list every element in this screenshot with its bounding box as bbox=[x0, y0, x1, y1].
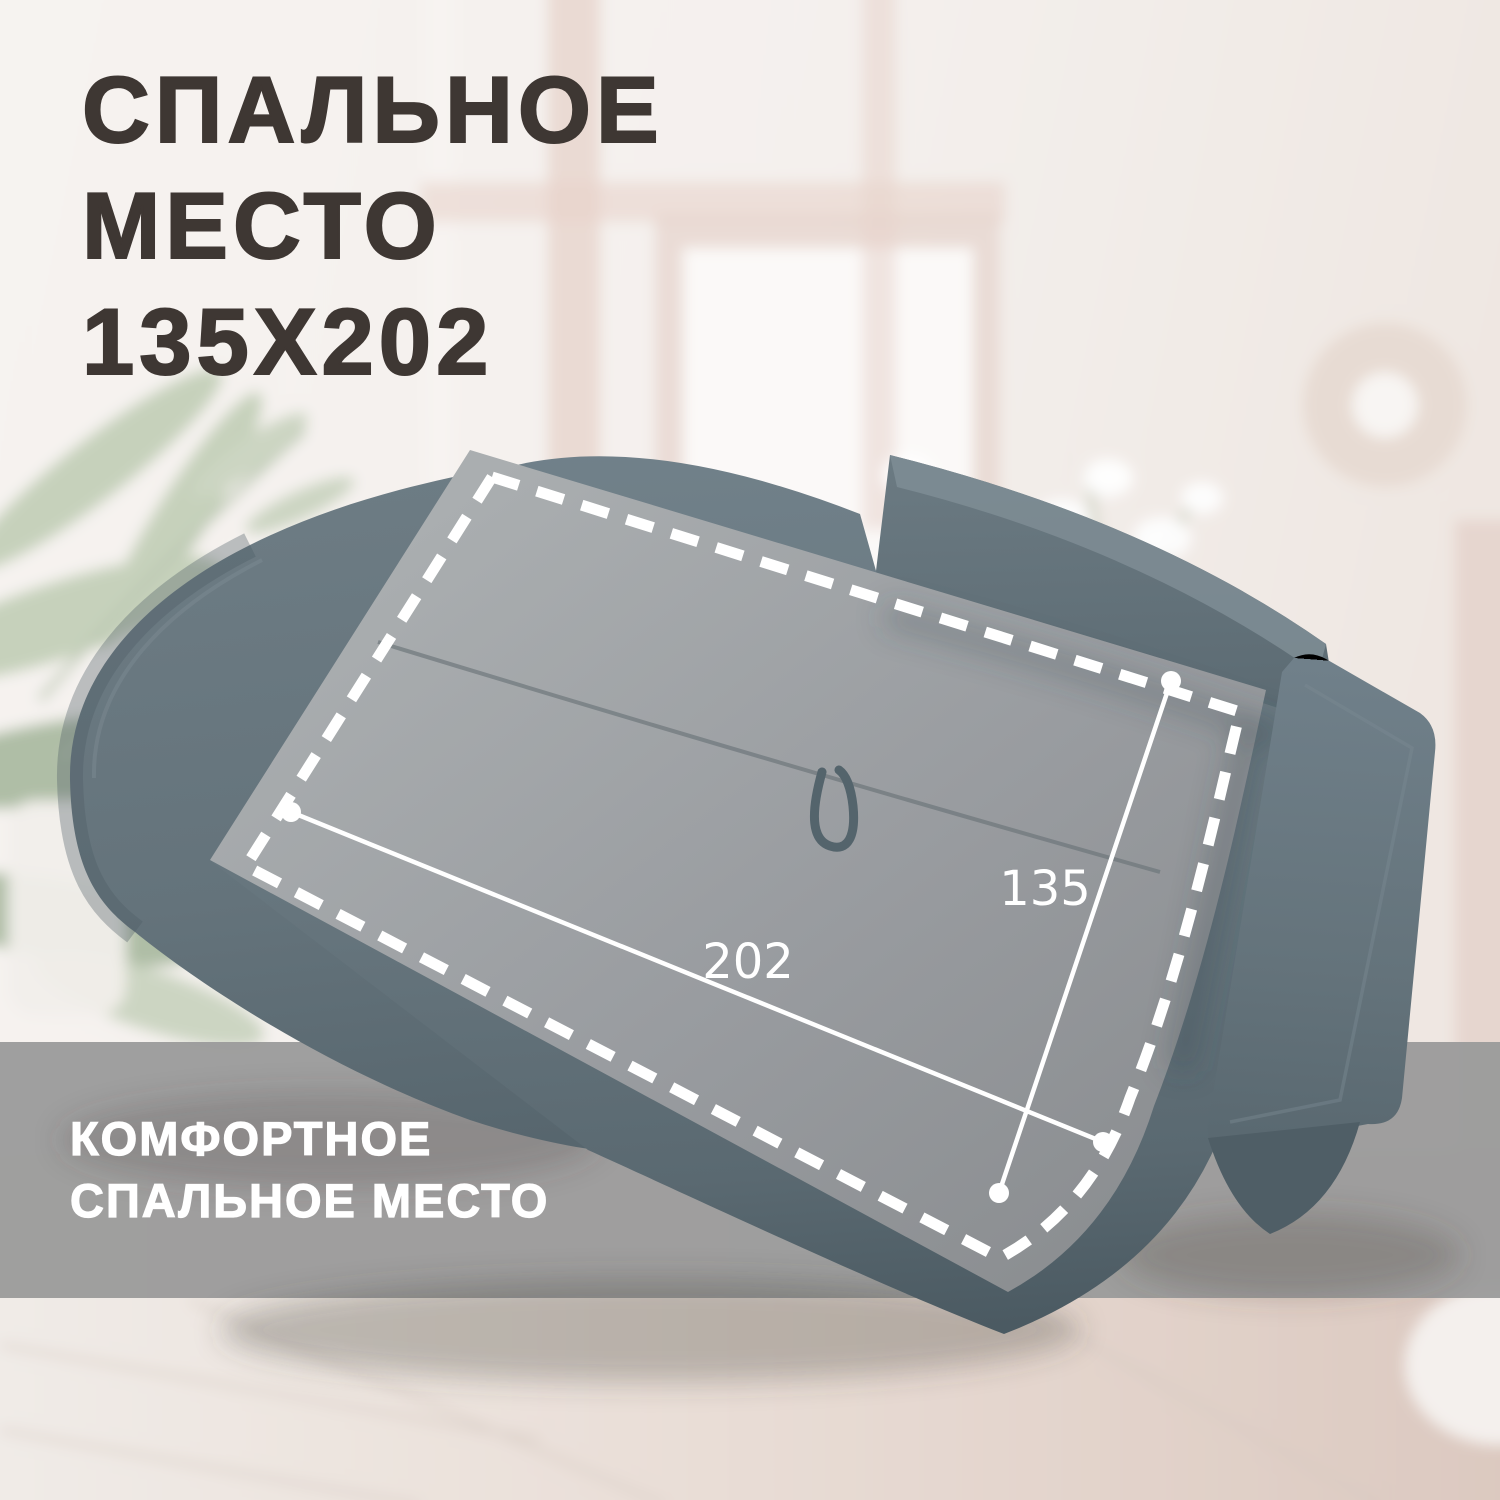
page-title: СПАЛЬНОЕ МЕСТО 135X202 bbox=[82, 52, 664, 400]
wall-ring-decor bbox=[1303, 323, 1467, 487]
door-frame-right bbox=[862, 0, 896, 530]
product-card: 202 135 СПАЛЬНОЕ МЕСТО 135X202 КОМФОРТНО… bbox=[0, 0, 1500, 1500]
banner-line-1: КОМФОРТНОЕ bbox=[70, 1108, 549, 1170]
banner-caption: КОМФОРТНОЕ СПАЛЬНОЕ МЕСТО bbox=[70, 1108, 549, 1232]
title-line-1: СПАЛЬНОЕ bbox=[82, 52, 664, 168]
title-line-3: 135X202 bbox=[82, 284, 664, 400]
width-dimension-label: 135 bbox=[999, 861, 1091, 917]
title-line-2: МЕСТО bbox=[82, 168, 664, 284]
banner-line-2: СПАЛЬНОЕ МЕСТО bbox=[70, 1170, 549, 1232]
length-dimension-label: 202 bbox=[702, 934, 794, 990]
